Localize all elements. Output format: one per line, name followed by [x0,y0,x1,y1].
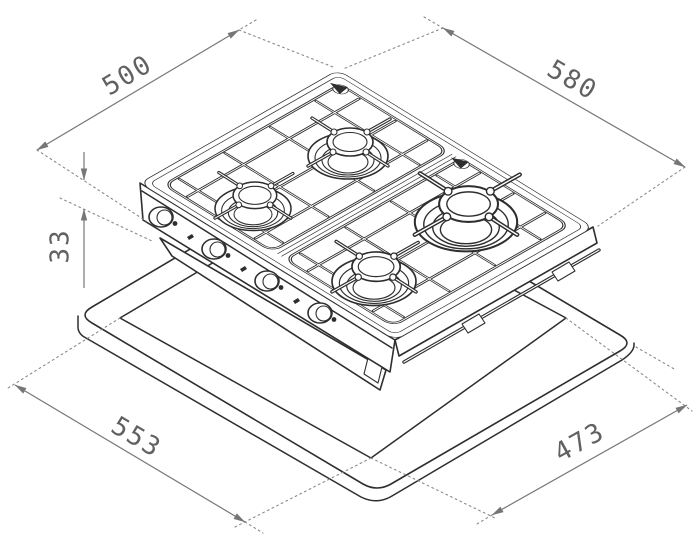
dimension-473-label: 473 [549,417,610,469]
dimension-33: 33 [46,152,85,288]
knob-indicator-dot [332,317,337,322]
extension-line [37,150,146,221]
dimension-553: 553 [15,385,245,522]
dimension-473: 473 [492,405,687,515]
dimension-500-label: 500 [97,49,158,102]
dimension-553-label: 553 [106,411,167,464]
extension-line [598,167,685,226]
knob-indicator-dot [279,285,284,290]
dimension-33-label: 33 [46,228,76,263]
extension-line [343,17,443,69]
diagram-canvas: 500 580 33 553 473 [0,0,700,550]
extension-line [239,20,333,67]
knob-indicator-dot [173,221,178,226]
dimension-500: 500 [37,30,239,150]
dimension-580: 580 [443,28,685,167]
dimension-580-label: 580 [542,54,603,106]
installation-diagram: 500 580 33 553 473 [0,0,700,550]
knob-indicator-dot [226,253,231,258]
